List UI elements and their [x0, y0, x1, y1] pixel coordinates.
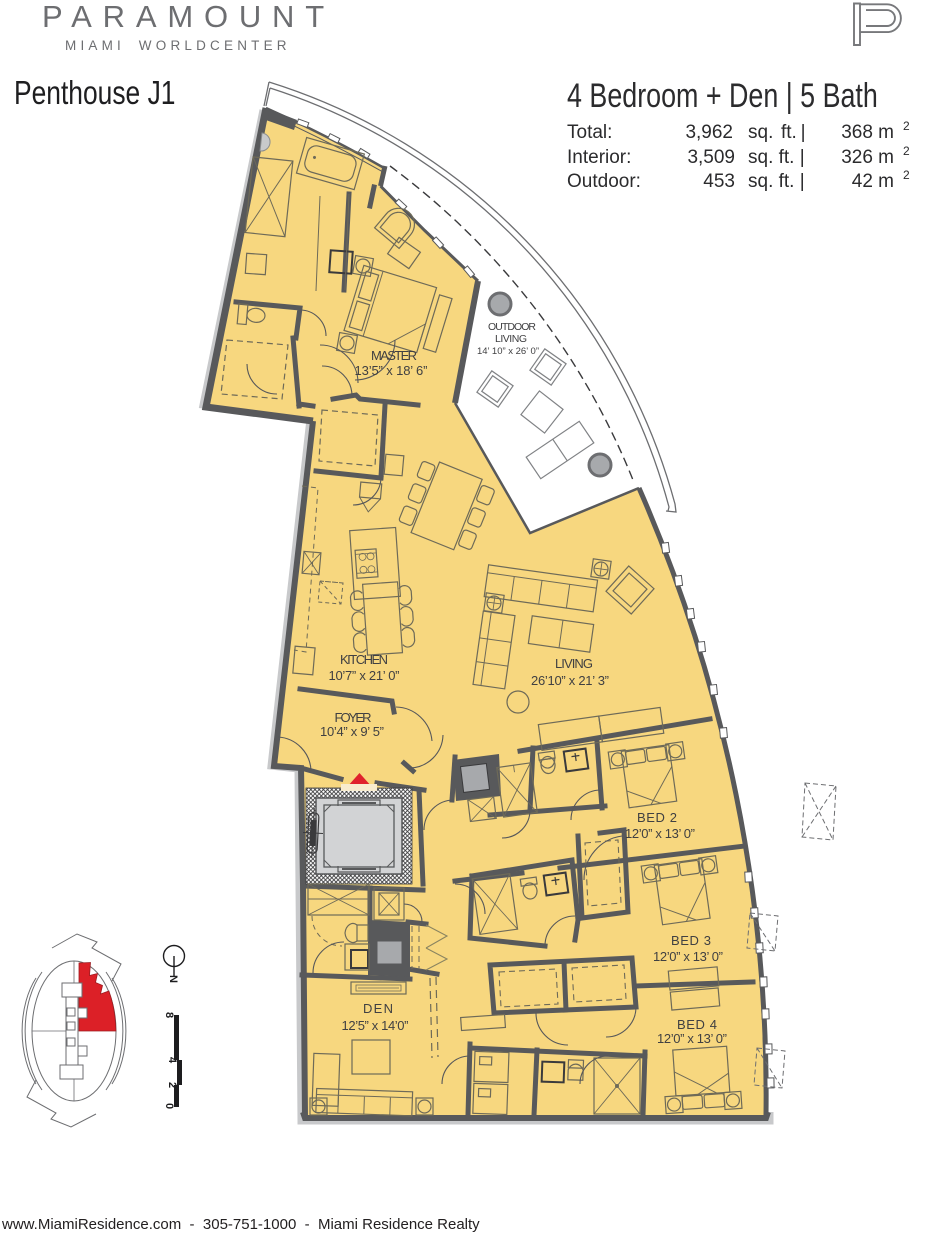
- svg-text:BED 3: BED 3: [671, 933, 711, 948]
- svg-text:KITCHEN: KITCHEN: [340, 652, 388, 667]
- svg-text:14’ 10” x 26’ 0”: 14’ 10” x 26’ 0”: [477, 346, 539, 357]
- svg-text:10’4” x 9’ 5”: 10’4” x 9’ 5”: [320, 724, 384, 739]
- svg-text:10’7” x 21’ 0”: 10’7” x 21’ 0”: [329, 668, 400, 683]
- svg-text:FOYER: FOYER: [335, 710, 372, 725]
- svg-text:MASTER: MASTER: [371, 348, 417, 363]
- svg-text:12’0” x 13’ 0”: 12’0” x 13’ 0”: [625, 826, 695, 841]
- svg-text:12’5” x 14’0”: 12’5” x 14’0”: [342, 1018, 409, 1033]
- svg-text:2: 2: [166, 1082, 178, 1088]
- svg-text:BED 2: BED 2: [637, 810, 677, 825]
- svg-text:8: 8: [163, 1012, 175, 1018]
- svg-text:4: 4: [166, 1057, 178, 1064]
- svg-text:13’5” x 18’ 6”: 13’5” x 18’ 6”: [355, 363, 428, 378]
- svg-text:OUTDOOR: OUTDOOR: [488, 321, 536, 333]
- svg-text:LIVING: LIVING: [555, 656, 593, 671]
- svg-text:12’0” x 13’ 0”: 12’0” x 13’ 0”: [653, 949, 723, 964]
- svg-text:LIVING: LIVING: [495, 333, 527, 345]
- svg-text:26’10” x 21’ 3”: 26’10” x 21’ 3”: [531, 673, 609, 688]
- svg-text:0: 0: [163, 1103, 175, 1109]
- svg-text:BED 4: BED 4: [677, 1017, 717, 1032]
- svg-text:12’0” x 13’ 0”: 12’0” x 13’ 0”: [657, 1031, 727, 1046]
- svg-text:DEN: DEN: [363, 1001, 393, 1016]
- svg-text:N: N: [167, 975, 179, 983]
